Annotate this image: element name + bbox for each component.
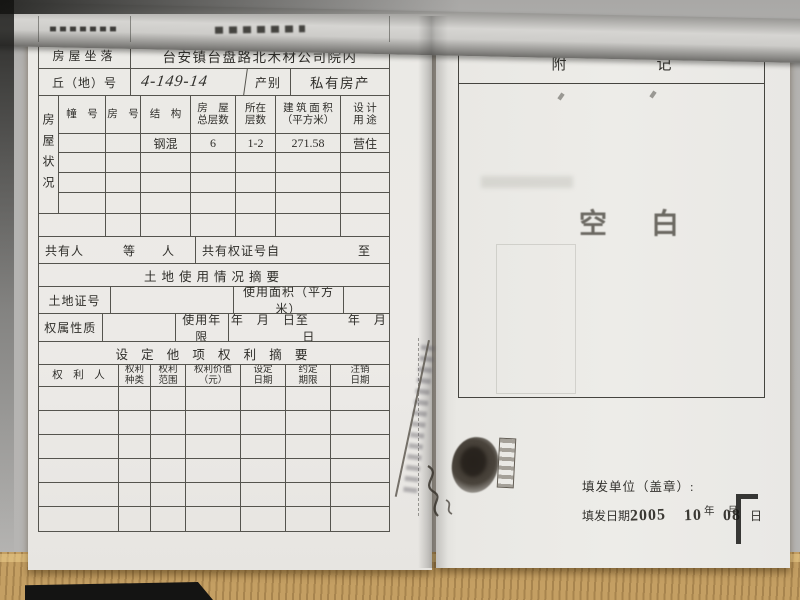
issuer-label: 填发单位（盖章）: <box>582 476 792 495</box>
header-rights-value: 权利价值 （元） <box>186 365 241 386</box>
total-floors-value: 6 <box>191 134 236 152</box>
header-rights-type: 权利 种类 <box>119 365 151 386</box>
plot-label: 丘（地）号 <box>39 69 131 95</box>
obscured-owner-value <box>131 16 389 42</box>
header-building-no: 幢 号 <box>59 96 106 133</box>
certificate-right-page: 附 记 空 白 填发单位（盖章）: 填发日期200510年08月日 <box>436 26 790 568</box>
obscured-owner-label <box>39 16 131 42</box>
rights-empty-row <box>39 483 389 507</box>
header-usage: 设 计 用 途 <box>341 96 389 133</box>
issue-date-line: 填发日期200510年08月日 <box>582 503 792 525</box>
header-area: 建 筑 面 积 （平方米） <box>276 96 341 133</box>
small-rect-seal-stamp <box>497 438 517 489</box>
house-table-header: 幢 号 房 号 结 构 房 屋 总层数 所在 层数 建 筑 面 积 （平方米） … <box>59 96 389 134</box>
header-floors: 所在 层数 <box>236 96 276 133</box>
area-value: 271.58 <box>276 134 341 152</box>
rights-empty-row <box>39 411 389 435</box>
header-structure: 结 构 <box>141 96 191 133</box>
photo-background: 房屋坐落 台安镇台盘路北木材公司院内 丘（地）号 4-149-14 产别 私有房… <box>0 0 800 600</box>
land-area-label: 使用面积（平方米） <box>234 287 344 313</box>
header-rights-holder: 权 利 人 <box>39 365 119 386</box>
bleed-through-rectangle <box>496 244 576 394</box>
remarks-underline <box>459 83 764 84</box>
house-empty-row <box>59 173 389 193</box>
land-section-title: 土地使用情况摘要 <box>39 264 389 287</box>
property-record-table: 房屋坐落 台安镇台盘路北木材公司院内 丘（地）号 4-149-14 产别 私有房… <box>38 42 390 532</box>
stamped-year: 2005 <box>630 506 667 525</box>
rights-empty-row <box>39 435 389 459</box>
left-shadow-edge <box>0 0 14 560</box>
tenure-years-label: 使用年限 <box>176 314 229 341</box>
header-room-no: 房 号 <box>106 96 141 133</box>
header-set-date: 设定 日期 <box>241 365 286 386</box>
tenure-label: 权属性质 <box>39 314 103 341</box>
plot-value-handwritten: 4-149-14 <box>129 69 248 95</box>
rights-empty-row <box>39 459 389 483</box>
co-owner-left: 共有人 等 人 <box>39 237 196 263</box>
co-owner-right: 共有权证号自 至 <box>196 237 389 263</box>
co-owner-row: 共有人 等 人 共有权证号自 至 <box>39 237 389 264</box>
certificate-left-page: 房屋坐落 台安镇台盘路北木材公司院内 丘（地）号 4-149-14 产别 私有房… <box>28 14 432 570</box>
house-data-row: 钢混 6 1-2 271.58 营住 <box>59 134 389 153</box>
stamped-month: 10 <box>684 507 703 526</box>
issue-date-label: 填发日期 <box>582 509 630 523</box>
bleed-through-mark <box>481 176 573 188</box>
usage-value: 营住 <box>341 134 389 152</box>
tenure-dates: 年 月 日至 年 月 日 <box>229 314 389 341</box>
house-status-block: 房屋状况 幢 号 房 号 结 构 房 屋 总层数 所在 层数 建 筑 面 积 （… <box>39 96 389 214</box>
land-cert-label: 土地证号 <box>39 287 111 313</box>
rights-table-header: 权 利 人 权利 种类 权利 范围 权利价值 （元） 设定 日期 约定 期限 注… <box>39 365 389 387</box>
house-empty-row <box>59 193 389 213</box>
rights-empty-row <box>39 387 389 411</box>
header-agreed-term: 约定 期限 <box>286 365 331 386</box>
rights-section-title: 设 定 他 项 权 利 摘 要 <box>39 342 389 365</box>
header-rights-scope: 权利 范围 <box>151 365 186 386</box>
rights-empty-row <box>39 507 389 531</box>
ink-speck <box>649 90 656 98</box>
plot-number-row: 丘（地）号 4-149-14 产别 私有房产 <box>39 69 389 96</box>
top-shadow-band <box>0 0 460 14</box>
obscured-owner-row <box>38 16 390 42</box>
structure-value: 钢混 <box>141 134 191 152</box>
category-value: 私有房产 <box>291 69 389 95</box>
category-label: 产别 <box>246 69 291 95</box>
corner-registration-mark <box>736 494 760 544</box>
issue-block: 填发单位（盖章）: 填发日期200510年08月日 <box>582 476 792 525</box>
tenure-row: 权属性质 使用年限 年 月 日至 年 月 日 <box>39 314 389 342</box>
house-merged-bottom-row <box>39 214 389 237</box>
header-cancel-date: 注销 日期 <box>331 365 389 386</box>
ink-speck <box>557 92 564 100</box>
handwriting-mark <box>416 462 468 520</box>
floors-value: 1-2 <box>236 134 276 152</box>
printed-year-unit: 年 <box>704 503 715 518</box>
header-total-floors: 房 屋 总层数 <box>191 96 236 133</box>
house-status-side-label: 房屋状况 <box>39 96 59 213</box>
land-cert-row: 土地证号 使用面积（平方米） <box>39 287 389 314</box>
blank-stamp: 空 白 <box>579 202 687 242</box>
house-empty-row <box>59 153 389 173</box>
